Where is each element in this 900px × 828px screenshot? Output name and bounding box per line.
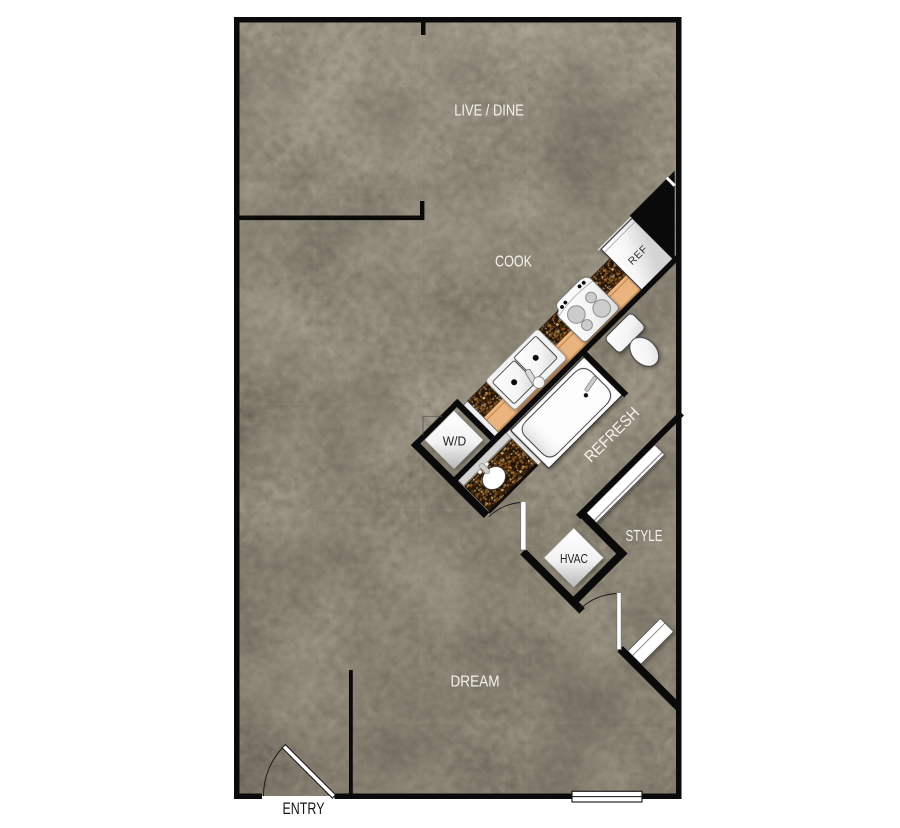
svg-text:HVAC: HVAC (560, 552, 588, 566)
svg-text:ENTRY: ENTRY (283, 800, 325, 818)
svg-text:W/D: W/D (443, 434, 467, 448)
svg-text:DREAM: DREAM (451, 674, 500, 691)
svg-text:COOK: COOK (495, 254, 533, 271)
svg-text:LIVE / DINE: LIVE / DINE (454, 103, 524, 120)
svg-text:STYLE: STYLE (626, 528, 663, 545)
